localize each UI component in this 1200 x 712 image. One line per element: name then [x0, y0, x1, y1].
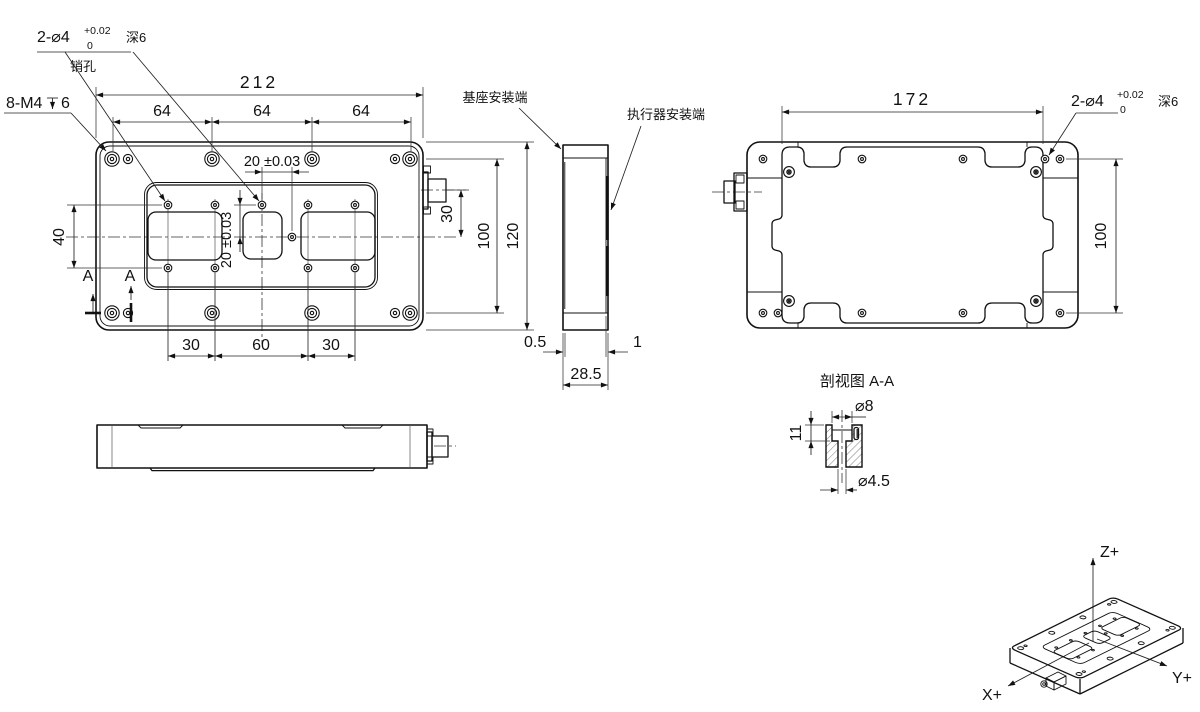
front-right-pocket: [301, 212, 375, 260]
back-view: 2-⌀4 +0.02 0 深6 172 100: [712, 89, 1178, 328]
back-connector: [712, 173, 762, 211]
side-dimensions: 0.5 1 28.5: [524, 316, 642, 390]
dim-hole-rows: 100: [476, 223, 493, 250]
bottom-outline: [97, 425, 427, 468]
iso-view: Z+ Y+ X+: [982, 544, 1192, 704]
thread-depth-value: 6: [61, 95, 70, 112]
back-inner-contour: [772, 147, 1053, 323]
front-pin-holes: [123, 154, 399, 317]
back-holes: [759, 155, 1064, 317]
pin-callout-depth: 深6: [126, 30, 146, 45]
dim-pin-offset-h: 20 ±0.03: [244, 154, 300, 170]
dim-bottom2: 60: [252, 337, 270, 354]
dim-pitch3: 64: [352, 103, 370, 120]
dim-total-height: 120: [505, 223, 522, 250]
actuator-mount-label: 执行器安装端: [627, 107, 705, 122]
dim-cbore-dia: ⌀8: [855, 398, 874, 415]
front-plate-outline: [96, 142, 423, 330]
pin-hole-label: 销孔: [70, 59, 96, 74]
side-outline: [563, 145, 608, 330]
iso-connector: [1041, 672, 1066, 690]
back-outline: [747, 142, 1078, 328]
back-callout-tol-lower: 0: [1120, 104, 1126, 116]
dim-hole-dia: ⌀4.5: [858, 473, 890, 490]
dim-thickness: 28.5: [570, 366, 601, 383]
front-center-pocket: [243, 212, 282, 259]
axis-x-label: X+: [982, 687, 1002, 704]
dim-back-height: 100: [1093, 223, 1110, 250]
front-left-pocket: [148, 212, 222, 260]
back-dimensions: 172 100: [782, 89, 1123, 313]
dim-back-width: 172: [893, 89, 931, 109]
dim-pitch1: 64: [153, 103, 171, 120]
back-pin-callout: 2-⌀4 +0.02 0 深6: [1049, 89, 1178, 155]
dim-cbore-depth: 11: [788, 425, 805, 442]
iso-side-faces: [1010, 628, 1183, 694]
front-counterbore-holes: [105, 152, 417, 320]
dim-pitch2: 64: [253, 103, 271, 120]
back-callout-tol-upper: +0.02: [1117, 89, 1144, 101]
section-material-left: [826, 425, 838, 467]
depth-symbol-icon: [47, 98, 58, 109]
dim-base-step: 0.5: [524, 334, 546, 351]
section-mark-a-right: A: [125, 268, 136, 285]
dim-bottom3: 30: [322, 337, 340, 354]
front-thread-callout: 8-M4 6: [4, 95, 106, 151]
dim-actuator-step: 1: [633, 334, 642, 351]
side-view: 基座安装端 执行器安装端 0.5 1 28.5: [462, 90, 705, 390]
iso-top-face: [1010, 597, 1183, 679]
dim-bottom1: 30: [182, 337, 200, 354]
bottom-view: [97, 425, 456, 471]
section-mark-a-left: A: [83, 268, 94, 285]
dim-connector-offset: 30: [439, 205, 456, 223]
thread-callout-text: 8-M4: [6, 95, 43, 112]
technical-drawing: 2-⌀4 +0.02 0 深6 销孔 8-M4 6 212: [0, 0, 1200, 712]
axis-y-label: Y+: [1172, 670, 1192, 687]
front-dimensions: 212 64 64 64 20 ±0.03 20 ±0.03: [51, 72, 534, 361]
section-title: 剖视图 A-A: [820, 373, 894, 390]
bottom-connector: [427, 429, 456, 464]
back-callout-depth: 深6: [1158, 94, 1178, 109]
pin-callout-text: 2-⌀4: [37, 29, 70, 46]
base-mount-label: 基座安装端: [462, 90, 527, 105]
dim-pocket-span: 40: [51, 228, 68, 246]
pin-callout-tol-lower: 0: [87, 40, 93, 52]
section-view: 剖视图 A-A ⌀8 11 ⌀4.5: [788, 373, 894, 494]
section-dimensions: ⌀8 11 ⌀4.5: [788, 398, 890, 494]
back-callout-text: 2-⌀4: [1071, 93, 1104, 110]
axis-z-label: Z+: [1100, 544, 1119, 561]
pin-callout-tol-upper: +0.02: [84, 25, 111, 37]
dim-pin-offset-v: 20 ±0.03: [219, 212, 235, 268]
dim-total-width: 212: [240, 72, 278, 92]
front-view: 2-⌀4 +0.02 0 深6 销孔 8-M4 6 212: [4, 25, 534, 361]
back-corner-pads: [747, 142, 1078, 328]
